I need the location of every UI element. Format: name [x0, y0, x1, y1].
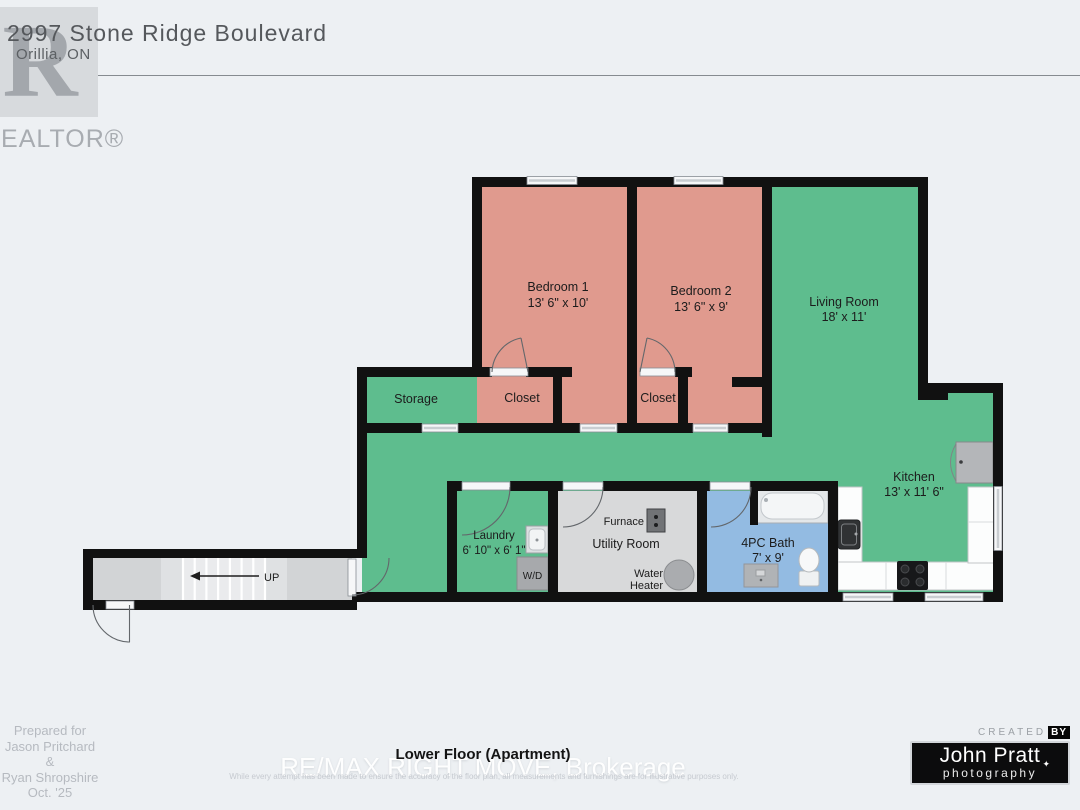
- utility-room-label: Utility Room: [592, 537, 659, 551]
- closet2-label: Closet: [640, 391, 676, 405]
- water-heater: [664, 560, 694, 590]
- bedroom2-label: Bedroom 2: [670, 284, 731, 298]
- water-heater-label-2: Heater: [630, 580, 663, 592]
- floor-plan-page: R REALTOR® 2997 Stone Ridge Boulevard Or…: [0, 0, 1080, 810]
- photographer-tagline: photography: [918, 767, 1062, 779]
- prepared-for-line: Prepared for: [0, 723, 100, 739]
- photographer-name: John Pratt: [918, 745, 1062, 767]
- kitchen-sink: [838, 520, 860, 549]
- plan-title: Lower Floor (Apartment): [283, 746, 683, 763]
- bedroom2-dims: 13' 6" x 9': [674, 300, 728, 314]
- bathtub: [757, 489, 828, 523]
- closet1-label: Closet: [504, 391, 540, 405]
- furnace-label: Furnace: [604, 516, 644, 528]
- bedroom1-dims: 13' 6" x 10': [528, 296, 589, 310]
- toilet: [799, 548, 819, 586]
- fridge: [951, 442, 994, 483]
- prepared-for-name-2: Ryan Shropshire: [0, 770, 100, 786]
- bath-dims: 7' x 9': [752, 551, 784, 565]
- created-label: CREATED: [978, 727, 1046, 738]
- living-room-label: Living Room: [809, 295, 878, 309]
- washer-dryer-label: W/D: [523, 571, 542, 582]
- disclaimer-text: While every attempt has been made to ens…: [184, 772, 784, 781]
- sparkle-icon: ✦: [1042, 759, 1050, 770]
- created-by-row: CREATEDBY: [910, 726, 1070, 739]
- laundry-label: Laundry: [473, 530, 515, 542]
- bedroom1-label: Bedroom 1: [527, 280, 588, 294]
- photographer-credit: CREATEDBY John Pratt photography ✦: [910, 726, 1070, 785]
- floor-plan-drawing: Bedroom 1 13' 6" x 10' Bedroom 2 13' 6" …: [0, 0, 1080, 810]
- living-room-dims: 18' x 11': [822, 310, 867, 324]
- photographer-logo: John Pratt photography ✦: [910, 741, 1070, 785]
- by-label: BY: [1048, 726, 1070, 739]
- prepared-for-name-1: Jason Pritchard &: [0, 739, 100, 770]
- prepared-for-date: Oct. '25: [0, 785, 100, 801]
- address-city: Orillia, ON: [16, 46, 91, 63]
- furnace: [647, 509, 665, 532]
- kitchen-dims: 13' x 11' 6": [884, 485, 944, 499]
- up-label: UP: [264, 572, 279, 584]
- bath-label: 4PC Bath: [741, 536, 795, 550]
- laundry-sink: [526, 526, 548, 553]
- water-heater-label-1: Water: [634, 568, 663, 580]
- laundry-dims: 6' 10" x 6' 1": [462, 545, 525, 557]
- storage-label: Storage: [394, 392, 438, 406]
- stove: [897, 561, 928, 590]
- prepared-for-block: Prepared for Jason Pritchard & Ryan Shro…: [0, 723, 100, 801]
- vanity-sink: [744, 564, 778, 587]
- address-title: 2997 Stone Ridge Boulevard: [7, 20, 327, 47]
- kitchen-label: Kitchen: [893, 470, 935, 484]
